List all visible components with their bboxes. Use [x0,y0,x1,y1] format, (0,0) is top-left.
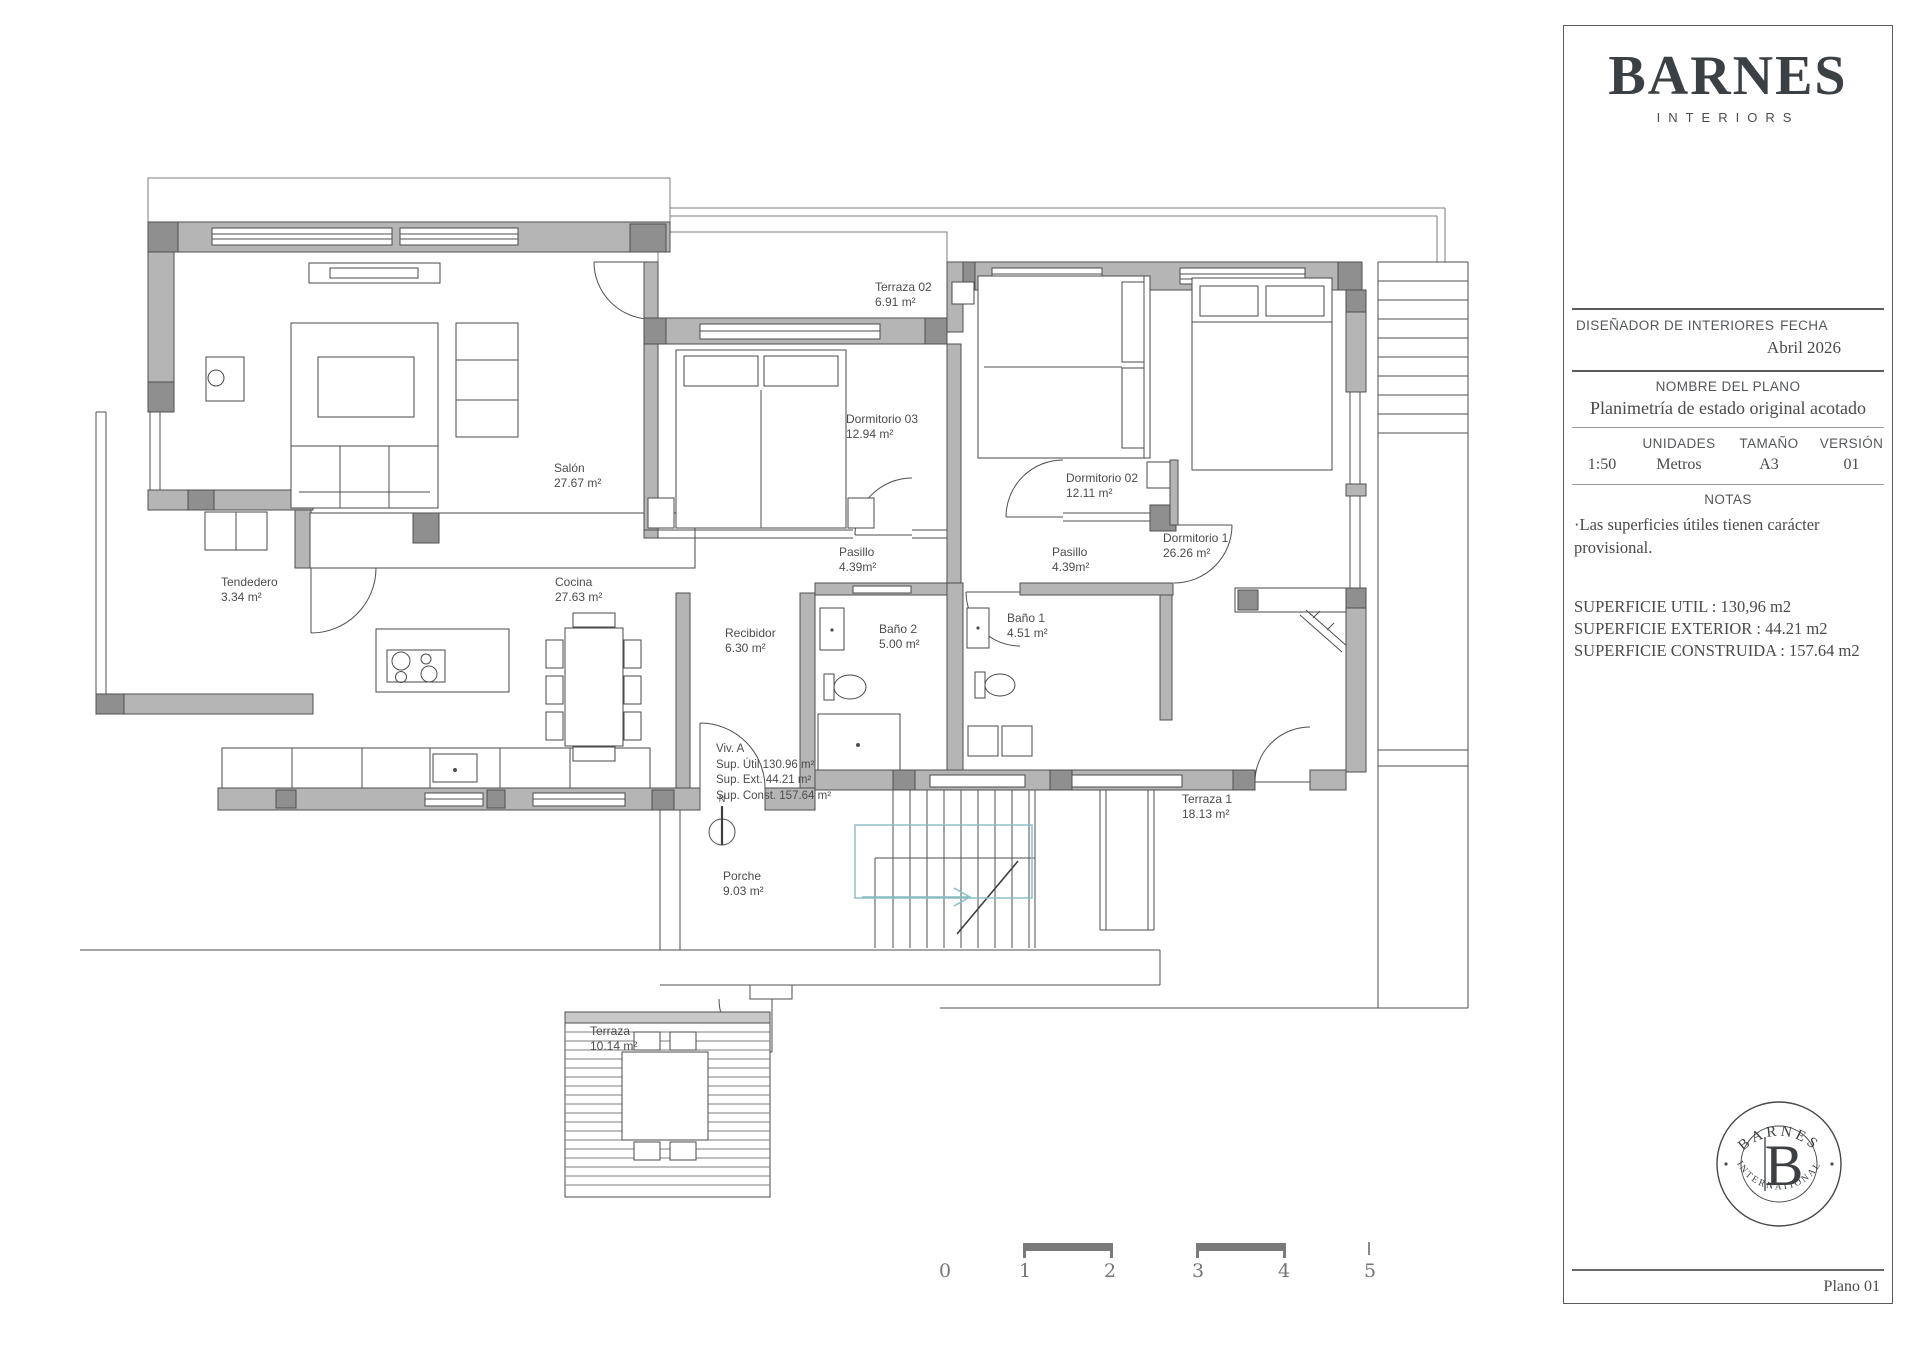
version-value: 01 [1814,456,1889,474]
scale-bar-tick [1110,1243,1113,1258]
room-label-dormitorio-02: Dormitorio 0212.11 m² [1066,471,1138,500]
superficie-util: SUPERFICIE UTIL : 130,96 m2 [1574,596,1791,618]
divider [1572,1269,1884,1271]
unit-summary: Viv. A Sup. Útil 130.96 m² Sup. Ext. 44.… [716,742,831,804]
room-label-pasillo-1: Pasillo4.39m² [839,545,876,574]
notes-line-1: ·Las superficies útiles tienen carácter [1574,514,1820,536]
divider [1572,370,1884,372]
divider [1572,484,1884,485]
room-label-terraza-02: Terraza 026.91 m² [875,280,932,309]
superficie-construida: SUPERFICIE CONSTRUIDA : 157.64 m2 [1574,640,1860,662]
room-label-porche: Porche9.03 m² [723,869,764,898]
scale-number-0: 0 [925,1260,965,1282]
scale-number-5: 5 [1350,1260,1390,1282]
divider [1572,427,1884,428]
page-number: Plano 01 [1824,1278,1880,1296]
units-label: UNIDADES [1639,436,1719,451]
scale-number-3: 3 [1178,1260,1218,1282]
notes-line-2: provisional. [1574,537,1652,559]
barnes-stamp: BARNES INTERNATIONAL B [1714,1099,1844,1229]
room-label-salon: Salón27.67 m² [554,461,601,490]
superficie-exterior: SUPERFICIE EXTERIOR : 44.21 m2 [1574,618,1827,640]
dormitorio-02 [947,276,1176,584]
room-label-dormitorio-1: Dormitorio 126.26 m² [1163,531,1228,560]
room-label-pasillo-2: Pasillo4.39m² [1052,545,1089,574]
scale-number-4: 4 [1264,1260,1304,1282]
units-value: Metros [1639,456,1719,474]
size-value: A3 [1729,456,1809,474]
ground-lines [80,810,1468,1008]
notes-label: NOTAS [1564,492,1892,507]
room-label-terraza: Terraza10.14 m² [590,1024,637,1053]
room-label-terraza-1: Terraza 118.13 m² [1182,792,1232,821]
scale-bar-tick [1023,1243,1026,1258]
divider [1572,308,1884,310]
size-label: TAMAÑO [1729,436,1809,451]
floor-plan-drawing: .w{fill:#b5b5b5;stroke:#4f4f4f;stroke-wi… [0,0,1563,1358]
brand-sublogo: INTERIORS [1564,110,1892,125]
room-label-recibidor: Recibidor6.30 m² [725,626,776,655]
plan-name-label: NOMBRE DEL PLANO [1564,379,1892,394]
room-label-tendedero: Tendedero3.34 m² [221,575,278,604]
date-value: Abril 2026 [1734,338,1874,358]
salon-furniture [206,263,695,568]
scale-bar-segment-2 [1198,1243,1284,1251]
scale-bar-tick [1368,1242,1370,1255]
stamp-letter: B [1765,1133,1804,1198]
room-label-bano-2: Baño 25.00 m² [879,622,920,651]
title-block: BARNES INTERIORS DISEÑADOR DE INTERIORES… [1563,25,1893,1304]
scale-value: 1:50 [1572,456,1632,474]
scale-number-2: 2 [1090,1260,1130,1282]
exterior-stairs [1378,262,1468,1008]
scale-number-1: 1 [1005,1260,1045,1282]
plan-name-value: Planimetría de estado original acotado [1564,398,1892,419]
unit-summary-title: Viv. A [716,742,831,758]
room-label-cocina: Cocina27.63 m² [555,575,602,604]
version-label: VERSIÓN [1814,436,1889,451]
dormitorio-1 [1170,278,1366,772]
room-label-dormitorio-03: Dormitorio 0312.94 m² [846,412,918,441]
room-label-bano-1: Baño 14.51 m² [1007,611,1048,640]
brand-logo: BARNES [1564,44,1892,108]
floor-plan-sheet: .w{fill:#b5b5b5;stroke:#4f4f4f;stroke-wi… [0,0,1920,1358]
scale-bar-segment-1 [1025,1243,1111,1251]
scale-bar-tick [1196,1243,1199,1258]
scale-bar-tick [1283,1243,1286,1258]
date-label: FECHA [1734,318,1874,333]
